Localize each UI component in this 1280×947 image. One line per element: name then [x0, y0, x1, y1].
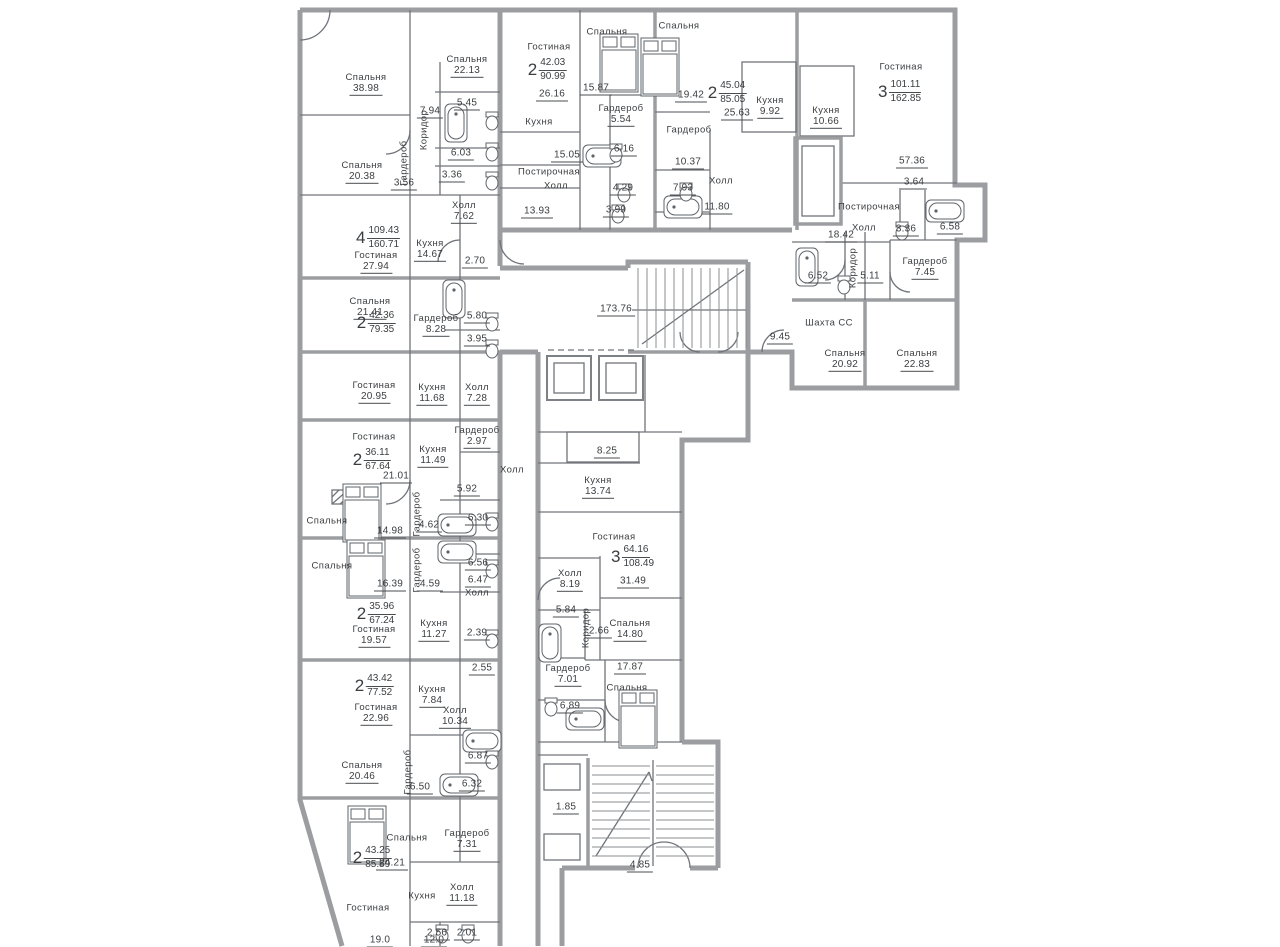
room-label: 173.76 — [597, 304, 635, 317]
room-name: Спальня — [897, 348, 938, 359]
apartment-total-area: 67.24 — [368, 615, 395, 628]
room-label: 4.29 — [610, 183, 636, 196]
room-label: Спальня22.83 — [897, 348, 938, 372]
room-label: Холл7.28 — [464, 382, 490, 406]
room-area-value: 11.68 — [416, 393, 447, 406]
room-area-value: 13.74 — [582, 486, 614, 499]
apartment-rooms-count: 2 — [353, 450, 362, 470]
room-name: Гардероб — [546, 663, 591, 674]
room-label: 57.36 — [896, 156, 928, 169]
room-name: Спальня — [346, 72, 387, 83]
apartment-living-area: 45.04 — [719, 80, 746, 94]
apartment-rooms-count: 2 — [357, 604, 366, 624]
room-label: Кухня14.67 — [414, 238, 446, 262]
room-label: Холл — [709, 175, 733, 186]
apartment-area-fraction: 101.11162.85 — [889, 79, 922, 105]
room-label: Гостиная — [592, 531, 635, 542]
room-area-value: 6.58 — [937, 222, 963, 235]
room-area-value: 7.93 — [670, 183, 696, 196]
room-area-value: 20.95 — [358, 391, 390, 404]
room-area-value: 6.89 — [557, 701, 583, 714]
room-area-value: 9.45 — [767, 332, 793, 345]
room-label: Кухня11.49 — [417, 444, 448, 468]
room-area-value: 14.98 — [374, 526, 406, 539]
room-name: Холл — [709, 175, 733, 186]
room-label: 16.39 — [374, 579, 406, 592]
room-label: Спальня — [307, 515, 348, 526]
room-label: Кухня13.74 — [582, 475, 614, 499]
apartment-marker: 243.2585.59 — [353, 845, 392, 871]
room-label: 17.87 — [614, 662, 646, 675]
room-area-value: 11.80 — [701, 202, 732, 215]
room-label: 14.98 — [374, 526, 406, 539]
room-name: Гардероб — [599, 103, 644, 114]
room-area-value: 3.56 — [391, 178, 417, 191]
room-label: Спальня38.98 — [346, 72, 387, 96]
apartment-total-area: 85.59 — [364, 859, 391, 872]
room-area-value: 6.47 — [465, 575, 491, 588]
room-area-value: 8.28 — [423, 324, 449, 337]
room-area-value: 4.59 — [417, 579, 443, 592]
room-label: Спальня — [607, 682, 648, 693]
room-label: 4.85 — [627, 860, 653, 873]
room-area-value: 5.92 — [454, 484, 480, 497]
room-label: Спальня — [659, 20, 700, 31]
room-label: Кухня10.66 — [810, 105, 842, 129]
room-area-value: 2.56 — [424, 928, 450, 941]
room-label: Гардероб — [667, 124, 712, 135]
room-label: 5.92 — [454, 484, 480, 497]
room-label: 2.66 — [586, 626, 612, 639]
room-area-value: 13.93 — [521, 206, 553, 219]
room-label: 13.93 — [521, 206, 553, 219]
room-name: Шахта СС — [805, 317, 853, 328]
room-label: 5.45 — [454, 98, 480, 111]
room-area-value: 38.98 — [350, 83, 382, 96]
apartment-marker: 242.0390.99 — [528, 57, 567, 83]
room-name: Гостиная — [352, 431, 395, 442]
apartment-area-fraction: 109.43160.71 — [367, 225, 400, 251]
room-area-value: 7.28 — [464, 393, 490, 406]
apartment-area-fraction: 42.3679.35 — [368, 310, 395, 336]
room-name: Гостиная — [352, 380, 395, 391]
apartment-marker: 3101.11162.85 — [878, 79, 922, 105]
room-label: 4.62 — [416, 520, 442, 533]
room-name: Гостиная — [354, 702, 397, 713]
room-label: Холл10.34 — [439, 705, 471, 729]
apartment-marker: 245.0485.05 — [708, 80, 747, 106]
room-label: Спальня14.80 — [610, 618, 651, 642]
apartment-rooms-count: 2 — [353, 848, 362, 868]
apartment-total-area: 160.71 — [367, 239, 400, 252]
room-label: 6.16 — [611, 144, 637, 157]
room-area-value: 8.25 — [594, 446, 620, 459]
room-label: 6.58 — [937, 222, 963, 235]
room-label: 15.87 — [580, 83, 612, 96]
room-area-value: 3.36 — [439, 170, 465, 183]
room-label: Спальня20.38 — [342, 160, 383, 184]
apartment-area-fraction: 36.1167.64 — [364, 447, 391, 473]
room-area-value: 7.31 — [454, 839, 480, 852]
room-name: Кухня — [525, 116, 552, 127]
room-label: 2.70 — [462, 256, 488, 269]
room-area-value: 2.70 — [462, 256, 488, 269]
room-area-value: 7.01 — [555, 674, 581, 687]
apartment-area-fraction: 43.2585.59 — [364, 845, 391, 871]
room-label: 6.89 — [557, 701, 583, 714]
room-name: Спальня — [342, 160, 383, 171]
room-label: 4.59 — [417, 579, 443, 592]
room-area-value: 4.62 — [416, 520, 442, 533]
apartment-area-fraction: 42.0390.99 — [539, 57, 566, 83]
apartment-total-area: 79.35 — [368, 324, 395, 337]
room-name: Холл — [544, 180, 568, 191]
apartment-marker: 235.9667.24 — [357, 601, 396, 627]
room-label: Гардероб2.97 — [455, 425, 500, 449]
apartment-marker: 236.1167.64 — [353, 447, 392, 473]
apartment-living-area: 43.42 — [366, 673, 393, 687]
room-name: Холл — [500, 464, 524, 475]
room-label: Постирочная — [838, 201, 900, 212]
room-name: Холл — [452, 200, 476, 211]
apartment-living-area: 42.03 — [539, 57, 566, 71]
apartment-marker: 364.16108.49 — [611, 544, 655, 570]
room-area-value: 1.85 — [553, 802, 579, 815]
room-area-value: 25.63 — [721, 108, 753, 121]
room-area-value: 17.87 — [614, 662, 646, 675]
apartment-rooms-count: 4 — [356, 228, 365, 248]
apartment-rooms-count: 2 — [357, 313, 366, 333]
room-name: Гардероб — [414, 313, 459, 324]
room-name: Гостиная — [346, 902, 389, 913]
room-name: Гардероб — [445, 828, 490, 839]
room-area-value: 26.16 — [536, 89, 568, 102]
room-label: Гостиная — [346, 902, 389, 913]
room-area-value: 20.46 — [346, 771, 378, 784]
room-name: Спальня — [825, 348, 866, 359]
room-label: 7.93 — [670, 183, 696, 196]
room-label: 3.36 — [893, 224, 919, 237]
room-area-value: 2.01 — [454, 928, 480, 941]
room-area-value: 18.42 — [825, 230, 857, 243]
room-area-value: 3.36 — [893, 224, 919, 237]
room-name: Кухня — [420, 618, 447, 629]
room-label: 5.84 — [553, 605, 579, 618]
apartment-total-area: 162.85 — [889, 93, 922, 106]
apartment-rooms-count: 2 — [355, 676, 364, 696]
room-name: Холл — [465, 587, 489, 598]
room-name: Спальня — [447, 54, 488, 65]
room-label: 3.64 — [901, 177, 927, 190]
apartment-living-area: 101.11 — [889, 79, 921, 93]
room-label: 19.0 — [367, 935, 393, 947]
room-name: Спальня — [312, 560, 353, 571]
room-name: Гостиная — [527, 41, 570, 52]
room-label: 6.03 — [448, 148, 474, 161]
room-area-value: 20.92 — [829, 359, 861, 372]
room-label: 3.56 — [391, 178, 417, 191]
room-label: 7.94 — [417, 106, 443, 119]
room-label: 2.55 — [469, 663, 495, 676]
room-area-value: 2.97 — [464, 436, 490, 449]
room-label: 6.47 — [465, 575, 491, 588]
room-label: Кухня — [408, 890, 435, 901]
room-label: 6.52 — [805, 271, 831, 284]
room-area-value: 15.87 — [580, 83, 612, 96]
apartment-rooms-count: 2 — [708, 83, 717, 103]
apartment-total-area: 67.64 — [364, 461, 391, 474]
room-name: Спальня — [350, 296, 391, 307]
room-label: 9.45 — [767, 332, 793, 345]
room-area-value: 15.05 — [551, 150, 583, 163]
room-area-value: 10.34 — [439, 716, 471, 729]
room-label: Гардероб7.01 — [546, 663, 591, 687]
room-area-value: 11.18 — [446, 893, 477, 906]
room-area-value: 7.45 — [912, 267, 938, 280]
apartment-area-fraction: 64.16108.49 — [622, 544, 655, 570]
room-label: Гостиная27.94 — [354, 250, 397, 274]
room-label: Холл — [465, 587, 489, 598]
room-area-value: 6.56 — [465, 558, 491, 571]
room-name: Постирочная — [838, 201, 900, 212]
room-label: 8.25 — [594, 446, 620, 459]
room-area-value: 6.32 — [459, 779, 485, 792]
room-name: Гостиная — [592, 531, 635, 542]
apartment-marker: 4109.43160.71 — [356, 225, 400, 251]
room-area-value: 20.38 — [346, 171, 378, 184]
room-label: Кухня — [525, 116, 552, 127]
room-label: 1.85 — [553, 802, 579, 815]
room-area-value: 10.66 — [810, 116, 842, 129]
room-area-value: 7.62 — [451, 211, 477, 224]
room-label: 2.39 — [464, 628, 490, 641]
apartment-rooms-count: 3 — [611, 547, 620, 567]
apartment-total-area: 108.49 — [622, 558, 655, 571]
room-area-value: 5.45 — [454, 98, 480, 111]
apartment-area-fraction: 35.9667.24 — [368, 601, 395, 627]
room-label: Гостиная19.57 — [352, 624, 395, 648]
room-label: 2.01 — [454, 928, 480, 941]
apartment-living-area: 64.16 — [622, 544, 649, 558]
room-area-value: 3.99 — [603, 205, 629, 218]
room-area-value: 11.27 — [418, 629, 449, 642]
room-name: Спальня — [342, 760, 383, 771]
room-name: Холл — [465, 382, 489, 393]
room-label: Кухня11.68 — [416, 382, 447, 406]
room-area-value: 10.37 — [672, 157, 704, 170]
room-label: 11.80 — [701, 202, 732, 215]
room-area-value: 22.13 — [451, 65, 483, 78]
apartment-area-fraction: 43.4277.52 — [366, 673, 393, 699]
room-label: Гостиная — [352, 431, 395, 442]
room-area-value: 5.80 — [464, 311, 490, 324]
room-area-value: 9.92 — [757, 106, 783, 119]
room-name: Кухня — [419, 444, 446, 455]
room-label: Холл7.62 — [451, 200, 477, 224]
room-label: 6.50 — [407, 782, 433, 795]
room-area-value: 7.94 — [417, 106, 443, 119]
room-area-value: 19.42 — [675, 90, 707, 103]
apartment-living-area: 35.96 — [368, 601, 395, 615]
room-area-value: 31.49 — [617, 576, 649, 589]
room-name: Гардероб — [667, 124, 712, 135]
room-label: 6.56 — [465, 558, 491, 571]
room-area-value: 14.67 — [414, 249, 446, 262]
apartment-total-area: 90.99 — [539, 71, 566, 84]
room-name: Гардероб — [455, 425, 500, 436]
room-label: Гардероб8.28 — [414, 313, 459, 337]
room-name: Холл — [443, 705, 467, 716]
apartment-rooms-count: 3 — [878, 82, 887, 102]
room-name: Спальня — [307, 515, 348, 526]
room-label: Спальня — [587, 26, 628, 37]
room-area-value: 16.39 — [374, 579, 406, 592]
room-label: Гостиная — [527, 41, 570, 52]
room-label: Гостиная — [879, 61, 922, 72]
apartment-living-area: 36.11 — [364, 447, 390, 461]
apartment-marker: 243.4277.52 — [355, 673, 394, 699]
room-label: 3.36 — [439, 170, 465, 183]
room-name: Спальня — [607, 682, 648, 693]
room-label: 10.37 — [672, 157, 704, 170]
room-area-value: 2.55 — [469, 663, 495, 676]
apartment-living-area: 109.43 — [367, 225, 400, 239]
room-label: Гостиная20.95 — [352, 380, 395, 404]
room-name: Холл — [558, 568, 582, 579]
room-area-value: 3.95 — [464, 334, 490, 347]
room-area-value: 19.57 — [358, 635, 390, 648]
room-area-value: 6.16 — [611, 144, 637, 157]
room-label: 2.56 — [424, 928, 450, 941]
apartment-rooms-count: 2 — [528, 60, 537, 80]
room-label: Гардероб7.31 — [445, 828, 490, 852]
room-label: 5.11 — [857, 271, 883, 284]
floor-plan: Спальня38.98Спальня22.13Коридор7.945.456… — [0, 0, 1280, 947]
room-area-value: 173.76 — [597, 304, 635, 317]
room-label: 18.42 — [825, 230, 857, 243]
room-name: Постирочная — [518, 166, 580, 177]
room-label: Холл — [500, 464, 524, 475]
room-area-value: 4.29 — [610, 183, 636, 196]
room-area-value: 6.52 — [805, 271, 831, 284]
room-area-value: 57.36 — [896, 156, 928, 169]
room-area-value: 14.80 — [614, 629, 646, 642]
room-label: Спальня20.46 — [342, 760, 383, 784]
room-label: 5.80 — [464, 311, 490, 324]
room-area-value: 27.94 — [360, 261, 392, 274]
room-area-value: 6.87 — [465, 751, 491, 764]
room-name: Спальня — [610, 618, 651, 629]
room-name: Кухня — [812, 105, 839, 116]
room-area-value: 2.66 — [586, 626, 612, 639]
room-name: Кухня — [756, 95, 783, 106]
room-label: Спальня — [387, 832, 428, 843]
room-area-value: 5.11 — [857, 271, 883, 284]
room-name: Кухня — [418, 684, 445, 695]
room-label: 6.32 — [459, 779, 485, 792]
room-label: Спальня — [312, 560, 353, 571]
room-area-value: 6.30 — [465, 513, 491, 526]
room-label: 26.16 — [536, 89, 568, 102]
room-label: 25.63 — [721, 108, 753, 121]
room-label: 3.95 — [464, 334, 490, 347]
room-label: Гостиная22.96 — [354, 702, 397, 726]
room-name: Кухня — [416, 238, 443, 249]
room-area-value: 3.64 — [901, 177, 927, 190]
room-label: Шахта СС — [805, 317, 853, 328]
room-labels-layer: Спальня38.98Спальня22.13Коридор7.945.456… — [0, 0, 1280, 947]
apartment-total-area: 85.05 — [719, 94, 746, 107]
room-area-value: 11.49 — [417, 455, 448, 468]
room-label: Кухня9.92 — [756, 95, 783, 119]
apartment-living-area: 43.25 — [364, 845, 391, 859]
room-name: Спальня — [659, 20, 700, 31]
apartment-total-area: 77.52 — [366, 687, 393, 700]
room-label: Холл — [544, 180, 568, 191]
room-label: Кухня11.27 — [418, 618, 449, 642]
room-area-value: 5.84 — [553, 605, 579, 618]
room-label: 3.99 — [603, 205, 629, 218]
apartment-living-area: 42.36 — [368, 310, 395, 324]
room-label: Холл11.18 — [446, 882, 477, 906]
room-area-value: 22.83 — [901, 359, 933, 372]
room-name: Гостиная — [354, 250, 397, 261]
room-area-value: 8.19 — [557, 579, 583, 592]
room-area-value: 5.54 — [608, 114, 634, 127]
room-label: Спальня20.92 — [825, 348, 866, 372]
apartment-marker: 242.3679.35 — [357, 310, 396, 336]
room-label: 19.42 — [675, 90, 707, 103]
room-label: Спальня22.13 — [447, 54, 488, 78]
room-area-value: 22.96 — [360, 713, 392, 726]
room-label: 31.49 — [617, 576, 649, 589]
room-name: Гардероб — [903, 256, 948, 267]
room-name: Кухня — [408, 890, 435, 901]
room-name: Кухня — [418, 382, 445, 393]
room-name: Спальня — [387, 832, 428, 843]
room-name: Кухня — [584, 475, 611, 486]
room-area-value: 6.50 — [407, 782, 433, 795]
room-area-value: 2.39 — [464, 628, 490, 641]
room-area-value: 4.85 — [627, 860, 653, 873]
room-label: Постирочная — [518, 166, 580, 177]
room-label: 6.30 — [465, 513, 491, 526]
room-area-value: 19.0 — [367, 935, 393, 947]
room-label: 6.87 — [465, 751, 491, 764]
room-label: Холл8.19 — [557, 568, 583, 592]
room-label: Гардероб7.45 — [903, 256, 948, 280]
room-name: Гостиная — [879, 61, 922, 72]
room-name: Спальня — [587, 26, 628, 37]
room-label: 15.05 — [551, 150, 583, 163]
room-area-value: 6.03 — [448, 148, 474, 161]
apartment-area-fraction: 45.0485.05 — [719, 80, 746, 106]
room-label: Гардероб5.54 — [599, 103, 644, 127]
room-name: Холл — [450, 882, 474, 893]
